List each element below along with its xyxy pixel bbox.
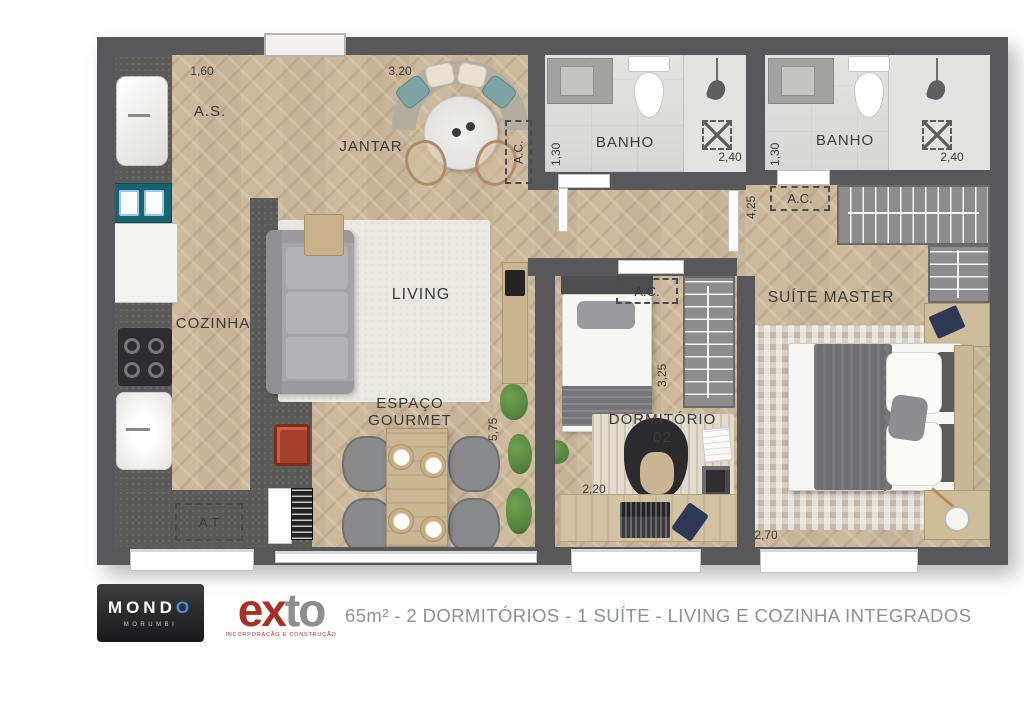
exto-logo: exto INCORPORAÇÃO E CONSTRUÇÃO — [224, 584, 338, 644]
door-dorm2-opening — [618, 260, 684, 274]
dim-suite-hall: 4,25 — [744, 188, 758, 226]
plan-caption: 65m² - 2 DORMITÓRIOS - 1 SUÍTE - LIVING … — [345, 602, 985, 630]
closet-rod-right — [957, 250, 959, 298]
place-setting-1 — [388, 444, 414, 470]
window-bottom-1 — [130, 549, 254, 571]
fridge — [114, 223, 178, 303]
label-banho1: BANHO — [585, 134, 665, 150]
burner-1 — [124, 338, 140, 354]
ac-zone-suite: A.C. — [770, 186, 830, 211]
plant-tv — [500, 384, 528, 420]
label-dorm2-2: 02 — [600, 430, 725, 445]
dorm2-pillow — [577, 301, 635, 329]
burner-4 — [148, 362, 164, 378]
sofa-armrest-bottom — [282, 381, 354, 394]
place-setting-2 — [420, 452, 446, 478]
dim-bath2-depth: 1,30 — [768, 136, 782, 172]
wall-outer-left — [97, 37, 115, 565]
floor-lamp-shade — [944, 506, 970, 532]
door-bath1-leaf — [558, 188, 568, 232]
entry-door-leaf — [268, 488, 292, 544]
cooktop — [118, 328, 172, 386]
door-bath1-opening — [558, 174, 610, 188]
suite-pillow-accent — [887, 394, 929, 443]
wall-outer-right — [990, 37, 1008, 565]
ac-zone-dorm2: A.C. — [616, 278, 678, 304]
mondo-logo: MONDO MORUMBI — [97, 584, 204, 642]
plant-gourmet-1 — [508, 434, 532, 474]
label-gourmet-1: ESPAÇO — [375, 396, 445, 411]
label-dorm2-1: DORMITÓRIO — [600, 412, 725, 427]
mondo-wordmark: MONDO — [108, 598, 193, 618]
label-living: LIVING — [390, 286, 452, 303]
washer-front — [119, 190, 139, 216]
ac-zone-jantar: A.C. — [505, 120, 532, 184]
mondo-name: MOND — [108, 598, 176, 617]
produce-crate — [274, 424, 310, 466]
window-bottom-3 — [760, 549, 918, 573]
window-top-ledge — [264, 33, 346, 57]
mondo-subtitle: MORUMBI — [124, 622, 178, 628]
laptop — [620, 502, 670, 538]
exto-ex: ex — [238, 584, 285, 636]
sofa-cushion-3 — [286, 337, 348, 379]
at-zone: A.T — [175, 503, 243, 541]
dim-bath1-depth: 1,30 — [549, 136, 563, 172]
dorm2-wardrobe — [683, 276, 735, 408]
kitchen-faucet — [126, 428, 150, 431]
dim-dorm2-width: 2,20 — [576, 482, 612, 495]
door-suite-hall-leaf — [728, 190, 739, 252]
dim-bath2-width: 2,40 — [934, 150, 970, 164]
place-setting-4 — [420, 516, 446, 542]
label-suite: SUÍTE MASTER — [770, 290, 892, 306]
wall-living-dorm2 — [535, 258, 555, 547]
vent-grill — [291, 488, 313, 540]
exto-to: to — [285, 584, 324, 636]
window-bottom-2 — [571, 549, 701, 573]
laundry-faucet — [128, 114, 150, 117]
exto-subtitle: INCORPORAÇÃO E CONSTRUÇÃO — [225, 632, 336, 638]
place-setting-3 — [388, 508, 414, 534]
label-cozinha: COZINHA — [175, 315, 251, 331]
wall-outer-top — [97, 37, 1008, 55]
table-decor-2 — [466, 122, 475, 131]
dim-as-width: 1,60 — [184, 64, 220, 77]
suite-bed-dashed-line — [884, 345, 886, 491]
kitchen-sink — [116, 392, 172, 470]
wardrobe-rod — [707, 286, 709, 399]
bath2-drain — [922, 120, 952, 150]
burner-2 — [148, 338, 164, 354]
window-rail-gourmet — [275, 551, 537, 563]
floor-plan-page: A.C. A.C. A.C. A.T A.S. JANTAR COZINHA L… — [0, 0, 1024, 721]
bath1-toilet-tank — [628, 56, 670, 72]
sofa-backrest — [266, 230, 282, 394]
dim-jantar-width: 3,20 — [382, 64, 418, 77]
plant-gourmet-2 — [506, 488, 532, 534]
dryer-front — [144, 190, 164, 216]
bath1-sink — [560, 66, 594, 96]
bath2-toilet-tank — [848, 56, 890, 72]
exto-wordmark: exto — [238, 590, 325, 630]
label-jantar: JANTAR — [335, 138, 407, 154]
dim-gourmet-length: 5,75 — [486, 410, 500, 448]
tv — [505, 270, 525, 296]
bath2-sink — [781, 66, 815, 96]
side-table — [304, 214, 344, 256]
mondo-o-icon: O — [176, 598, 193, 617]
sofa-cushion-2 — [286, 292, 348, 334]
dim-suite-width: 2,70 — [748, 528, 784, 542]
suite-headboard — [954, 345, 974, 491]
label-gourmet-2: GOURMET — [368, 413, 452, 428]
dim-dorm2-depth: 3,25 — [655, 356, 669, 394]
label-banho2: BANHO — [805, 132, 885, 148]
table-decor-1 — [452, 128, 461, 137]
dim-bath1-width: 2,40 — [712, 150, 748, 164]
desk-chair-cushion — [640, 452, 674, 494]
gourmet-chair-4 — [448, 498, 500, 554]
suite-bed-runner — [814, 344, 892, 490]
bath1-drain — [702, 120, 732, 150]
suite-closet-right — [928, 245, 990, 303]
laundry-sink — [116, 76, 168, 166]
wall-dorm2-suite — [737, 276, 755, 547]
burner-3 — [124, 362, 140, 378]
wall-between-baths — [746, 37, 765, 185]
suite-closet-top — [837, 185, 990, 245]
closet-rod-top — [848, 212, 979, 214]
label-as: A.S. — [188, 103, 232, 119]
door-bath2-opening — [777, 170, 830, 185]
